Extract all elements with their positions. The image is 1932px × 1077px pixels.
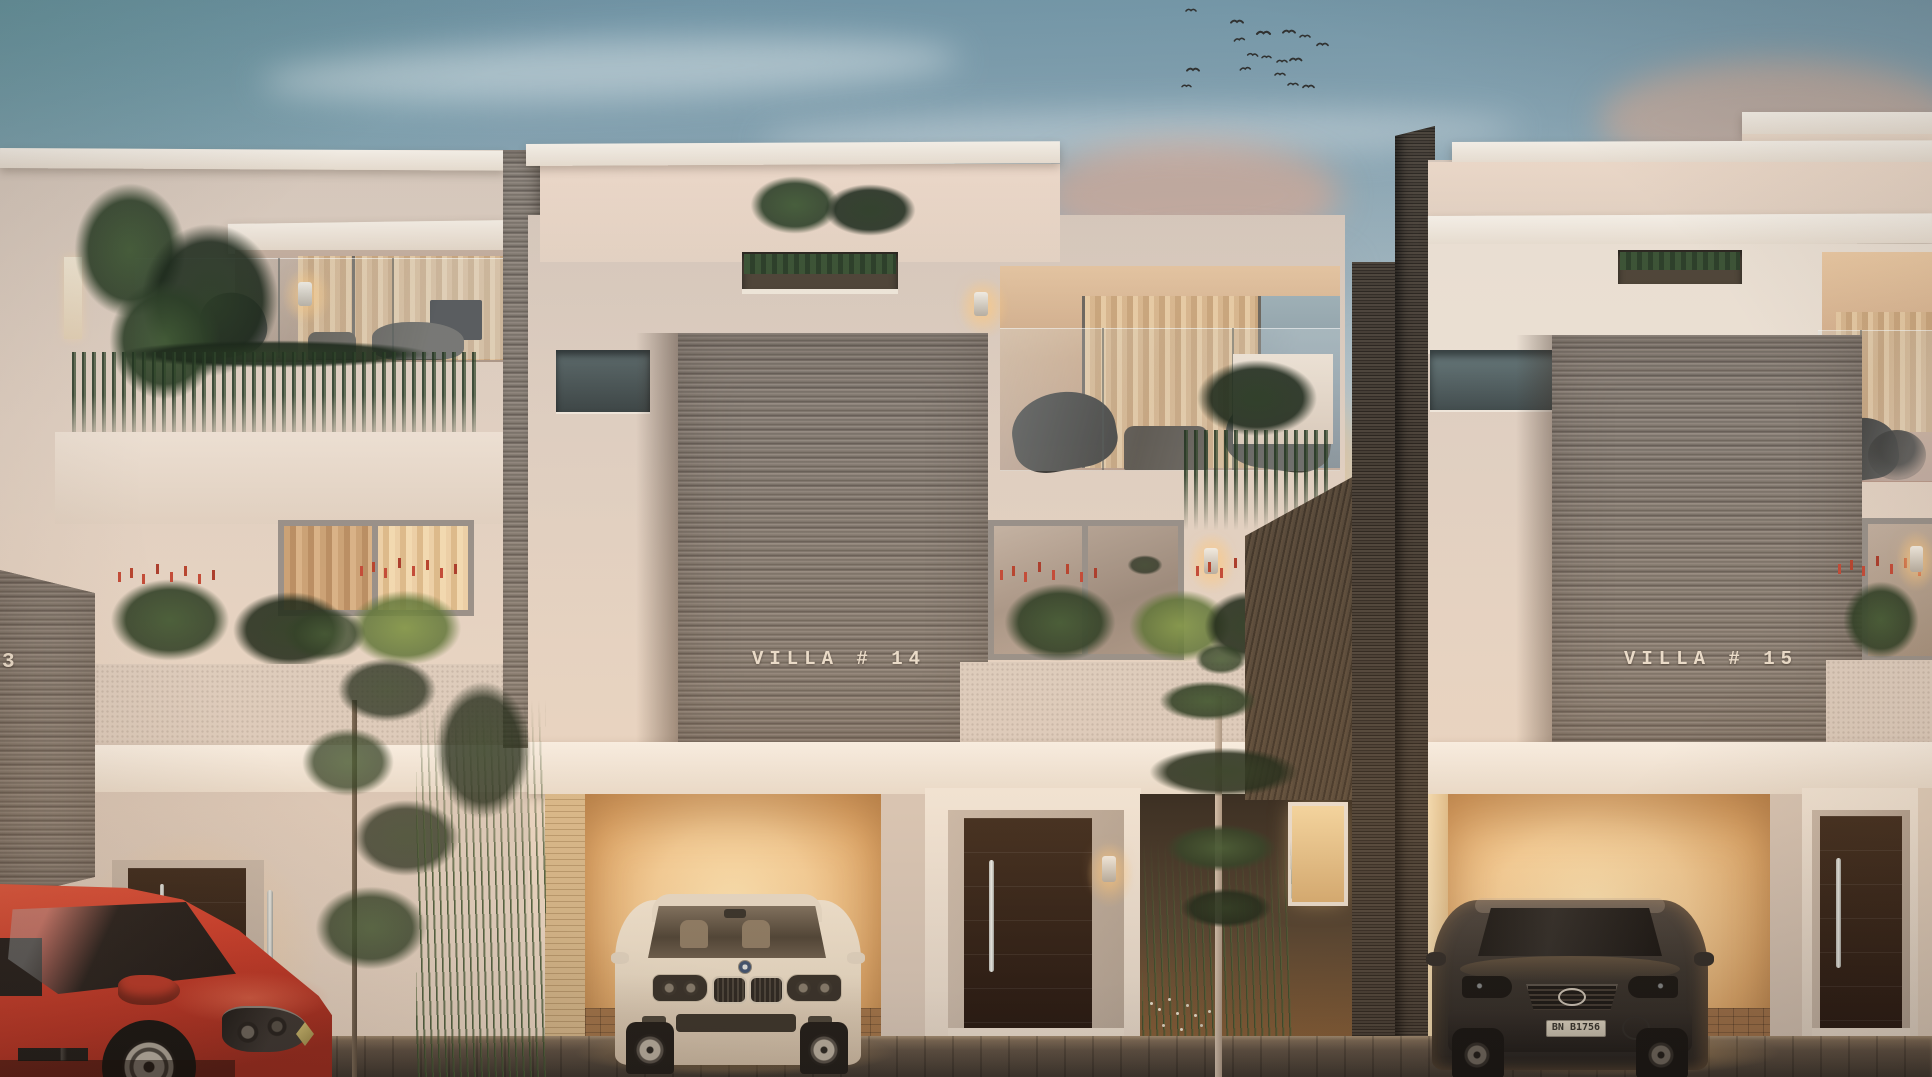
birds-flock-icon <box>1150 2 1360 102</box>
dark-suv-headlight <box>1628 976 1678 998</box>
villa14-slot-sill <box>742 289 898 294</box>
infiniti-logo-icon <box>1558 988 1586 1006</box>
villa15-band <box>1428 213 1932 246</box>
dark-suv-alloy <box>1646 1040 1676 1070</box>
villa14-window-hanging-sprig <box>1122 552 1168 578</box>
villa14-tree-tier <box>1146 816 1296 880</box>
red-car-rocker-shadow <box>0 1060 235 1077</box>
dark-suv-license-plate: BN B1756 <box>1546 1020 1606 1037</box>
villa14-tree-tier <box>1166 882 1286 934</box>
villa13-number-plaque: 3 <box>2 652 21 673</box>
villa14-garage-brick-jamb <box>545 794 585 1062</box>
dark-suv-windshield <box>1478 908 1662 956</box>
bmw-roundel-icon <box>738 960 752 974</box>
villa14-slot-hedge <box>744 254 896 274</box>
dark-suv-headlight <box>1462 976 1512 998</box>
villa15-slot-hedge <box>1620 252 1740 270</box>
dark-suv-alloy <box>1462 1040 1492 1070</box>
villa15-stonebox-shadow <box>1516 335 1554 743</box>
villa15-front-door <box>1820 816 1902 1048</box>
white-sedan-rearview-mirror <box>724 909 746 918</box>
white-sedan-alloy <box>808 1034 840 1066</box>
villa15-edge-strip <box>1918 788 1932 1077</box>
villa14-midfloor-sconce <box>1204 548 1218 574</box>
villa15-door-handle <box>1836 858 1841 968</box>
villa14-red-flowers <box>1196 566 1199 576</box>
villa14-white-flowers <box>1150 1002 1153 1005</box>
villa15-stone-box <box>1552 335 1862 743</box>
white-sedan-seat <box>742 920 770 948</box>
villa14-stonebox-shadow <box>636 333 678 743</box>
villa14-roof-coping <box>526 141 1060 166</box>
white-sedan-seat <box>680 920 708 948</box>
villa14-roof-shrubs <box>810 176 930 244</box>
villa13-shrub <box>420 660 546 840</box>
villa13-red-flowers <box>118 572 121 582</box>
dark-suv-mirror <box>1694 952 1714 966</box>
villa14-front-door <box>964 818 1092 1048</box>
villa-row-scene: 3 VILLA # 14 <box>0 0 1932 1077</box>
villa14-balcony-sconce <box>974 292 988 316</box>
party-wall-inner-face <box>1352 262 1397 1077</box>
villa13-stone-corner <box>0 570 95 900</box>
villa14-red-flowers <box>1000 570 1003 580</box>
dark-suv-mirror <box>1426 952 1446 966</box>
bmw-kidney-grille-left <box>712 976 747 1004</box>
bmw-kidney-grille-right <box>749 976 784 1004</box>
villa14-door-handle <box>989 860 994 972</box>
villa14-tree-tier <box>1142 674 1274 728</box>
villa15-upper-coping <box>1742 112 1932 136</box>
villa14-garden-lit-window <box>1292 806 1344 902</box>
white-sedan-headlight-left <box>652 974 708 1002</box>
villa15-parapet-stucco <box>1428 162 1932 218</box>
villa14-door-sconce <box>1102 856 1116 882</box>
villa13-parapet-band <box>55 432 505 524</box>
white-sedan-mirror <box>847 952 865 964</box>
white-sedan-alloy <box>634 1034 666 1066</box>
villa15-number-plaque: VILLA # 15 <box>1624 650 1798 669</box>
villa13-roof-coping <box>0 148 505 171</box>
villa14-railing-seam <box>1102 328 1104 470</box>
white-sedan-headlight-right <box>786 974 842 1002</box>
red-car-headlight <box>222 1006 308 1052</box>
white-sedan-mirror <box>611 952 629 964</box>
villa15-ground-fascia <box>1428 742 1932 794</box>
villa14-tree-tier <box>1126 740 1322 804</box>
villa15-edge-sconce <box>1910 546 1923 572</box>
villa13-red-flowers <box>360 566 363 576</box>
villa15-planter-parapet <box>1826 660 1932 746</box>
white-sedan-bumper-intake <box>676 1014 796 1032</box>
villa15-roof-coping <box>1452 140 1932 164</box>
villa14-number-plaque: VILLA # 14 <box>752 650 926 669</box>
villa14-stone-box <box>678 333 988 743</box>
villa15-red-flowers <box>1838 564 1841 574</box>
